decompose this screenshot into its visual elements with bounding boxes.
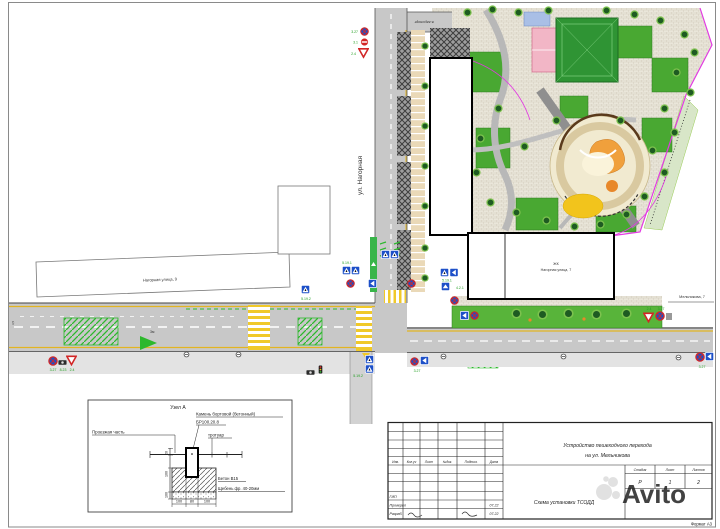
sign-code: 4.2.1 (456, 286, 464, 290)
sign-code: 5.19.1 (442, 279, 452, 283)
direction-arrow-sign-icon (460, 311, 468, 319)
sheets-value: 2 (696, 480, 700, 486)
pedestrian-crossing-sign-icon (390, 250, 398, 258)
no-stopping-sign-icon (347, 280, 354, 287)
dim-100-right: 100 (204, 500, 210, 504)
pole-symbol-icon (236, 352, 241, 357)
sign-code: 2.4 (647, 307, 652, 311)
pedestrian-crossing-sign-icon (440, 268, 448, 276)
format-label: Формат А3 (691, 522, 713, 527)
drawing-sheet: в аэропорт ул. Нагорная (0, 0, 720, 529)
no-stopping-sign-icon (411, 358, 418, 365)
jk-label: ЖК (553, 262, 559, 266)
stage-label: Стадия (634, 468, 647, 472)
role-dev: Разраб. (390, 512, 403, 516)
direction-arrow-sign-icon (450, 268, 458, 276)
site-plan-drawing: в аэропорт ул. Нагорная (0, 0, 720, 529)
doc-title: Схема установки ТСОДД (534, 500, 595, 506)
sign-code: 2.4 (351, 52, 356, 56)
vdim-20: 20 (165, 451, 169, 455)
sheets-label: Листов (691, 468, 705, 472)
park-masterplan (432, 5, 712, 236)
building-lower (468, 233, 614, 299)
green-strip (452, 306, 662, 328)
avito-logo-icon (596, 484, 612, 500)
pole-symbol-icon (676, 355, 681, 360)
vertical-street-label: ул. Нагорная (357, 156, 364, 195)
direction-arrow-sign-icon (420, 356, 428, 364)
dim-80: 80 (190, 500, 194, 504)
building-left-wing (278, 186, 330, 254)
sports-field (524, 12, 618, 82)
sign-code: 5.19.1 (342, 261, 352, 265)
sign-code: 3.27 (658, 307, 665, 311)
no-stopping-sign-icon (49, 357, 57, 365)
pedestrian-crossing-sign-icon (381, 250, 389, 258)
vdim-100b: 100 (165, 492, 169, 498)
building-slab (430, 58, 472, 235)
crosswalk-secondary (356, 306, 372, 351)
sign-code: 3.27 (414, 369, 421, 373)
date-dev: 07.22 (490, 512, 499, 516)
no-stopping-sign-icon (656, 312, 664, 320)
pole-symbol-icon (561, 354, 566, 359)
no-entry-sign-icon (361, 38, 369, 46)
project-title-line1: Устройство пешеходного перехода (563, 442, 652, 449)
project-title-line2: на ул. Мельникова (585, 453, 630, 459)
stone-label-2: БР100.20.8 (196, 420, 219, 425)
no-stopping-sign-icon (451, 297, 458, 304)
camera-sign-icon (306, 370, 314, 375)
col-izm: Изм. (392, 460, 399, 464)
sign-code: 2.4 (70, 368, 75, 372)
building-far-right-label: Мельникова, 7 (679, 295, 705, 299)
col-koluch: Кол.уч (407, 460, 417, 464)
vdim-100a: 100 (165, 471, 169, 477)
sheet-label: Лист (665, 468, 675, 472)
sign-code: 3.27 (351, 30, 358, 34)
pedestrian-crossing-sign-icon (342, 266, 350, 274)
direction-arrow-sign-icon (705, 352, 713, 360)
sign-code: 8.23 (60, 368, 67, 372)
sign-code: 3.1 (353, 41, 358, 45)
node-detail-box: Узел А Камень бортовой (бетонный) БР100.… (88, 400, 292, 512)
col-data: Дата (489, 460, 499, 464)
building-right-label: Нагорная улица, 7 (541, 268, 572, 272)
no-stopping-sign-icon (408, 280, 415, 287)
sidewalk-label: тротуар (208, 433, 224, 438)
sign-code: 5.19.2 (353, 374, 363, 378)
roadway-label: Проезжая часть (92, 430, 125, 435)
pedestrian-crossing-sign-icon (301, 285, 309, 293)
dim-100-left: 100 (176, 500, 182, 504)
traffic-light-icon (319, 365, 323, 373)
col-ndok: №док. (443, 460, 452, 464)
pedestrian-crossing-sign-icon (365, 355, 373, 363)
gravel-label: Щебень фр. 40-20мм (218, 486, 259, 491)
top-road-label: в аэропорт (414, 20, 434, 24)
pole-symbol-icon (184, 352, 189, 357)
pedestrian-crossing-sign-icon (365, 365, 373, 373)
direction-arrow-sign-icon (368, 279, 376, 287)
title-block: Изм. Кол.уч Лист №док. Подпись Дата ГИП … (388, 423, 713, 527)
camera-sign-icon (58, 360, 66, 365)
lane-width-label: 3,5 (11, 320, 15, 325)
sign-code: 3.27 (50, 368, 57, 372)
pedestrian-crossing-sign-icon (351, 266, 359, 274)
no-stopping-sign-icon (471, 312, 478, 319)
col-list: Лист (424, 460, 434, 464)
no-stopping-sign-icon (361, 28, 368, 35)
crosswalk-vertical-road (384, 290, 406, 303)
watermark-text: Avito (622, 479, 686, 509)
lane-note: 3м (150, 330, 155, 334)
stone-label-1: Камень бортовой (бетонный) (196, 412, 256, 417)
sign-code: 5.19.2 (301, 297, 311, 301)
date-checked: 07.22 (490, 503, 499, 507)
no-stopping-sign-icon (696, 353, 704, 361)
sidewalk-right (407, 353, 713, 367)
concrete-label: Бетон В15 (218, 476, 239, 481)
node-title: Узел А (170, 405, 186, 411)
pole-symbol-icon (441, 354, 446, 359)
role-gip: ГИП (390, 495, 398, 499)
role-checked: Проверил (390, 503, 406, 507)
direction-up-sign-icon (441, 282, 449, 290)
sign-code: 3.27 (699, 365, 706, 369)
crosswalk-main (248, 305, 270, 350)
col-podpis: Подпись (465, 460, 478, 464)
